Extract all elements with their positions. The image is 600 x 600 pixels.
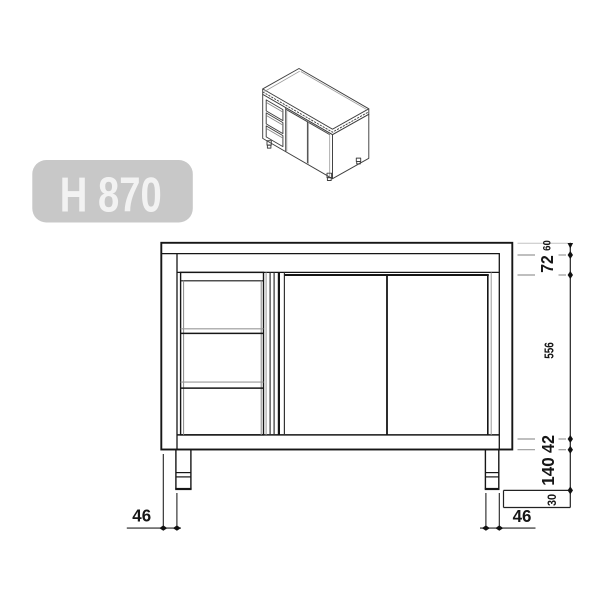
svg-text:H 870: H 870 xyxy=(60,168,162,223)
svg-text:72: 72 xyxy=(537,255,557,273)
svg-text:30: 30 xyxy=(546,494,559,506)
svg-text:42: 42 xyxy=(538,435,558,453)
svg-text:140: 140 xyxy=(538,457,559,486)
svg-text:60: 60 xyxy=(542,240,554,251)
svg-text:46: 46 xyxy=(132,505,151,526)
svg-text:46: 46 xyxy=(513,505,532,526)
svg-text:556: 556 xyxy=(544,342,558,358)
